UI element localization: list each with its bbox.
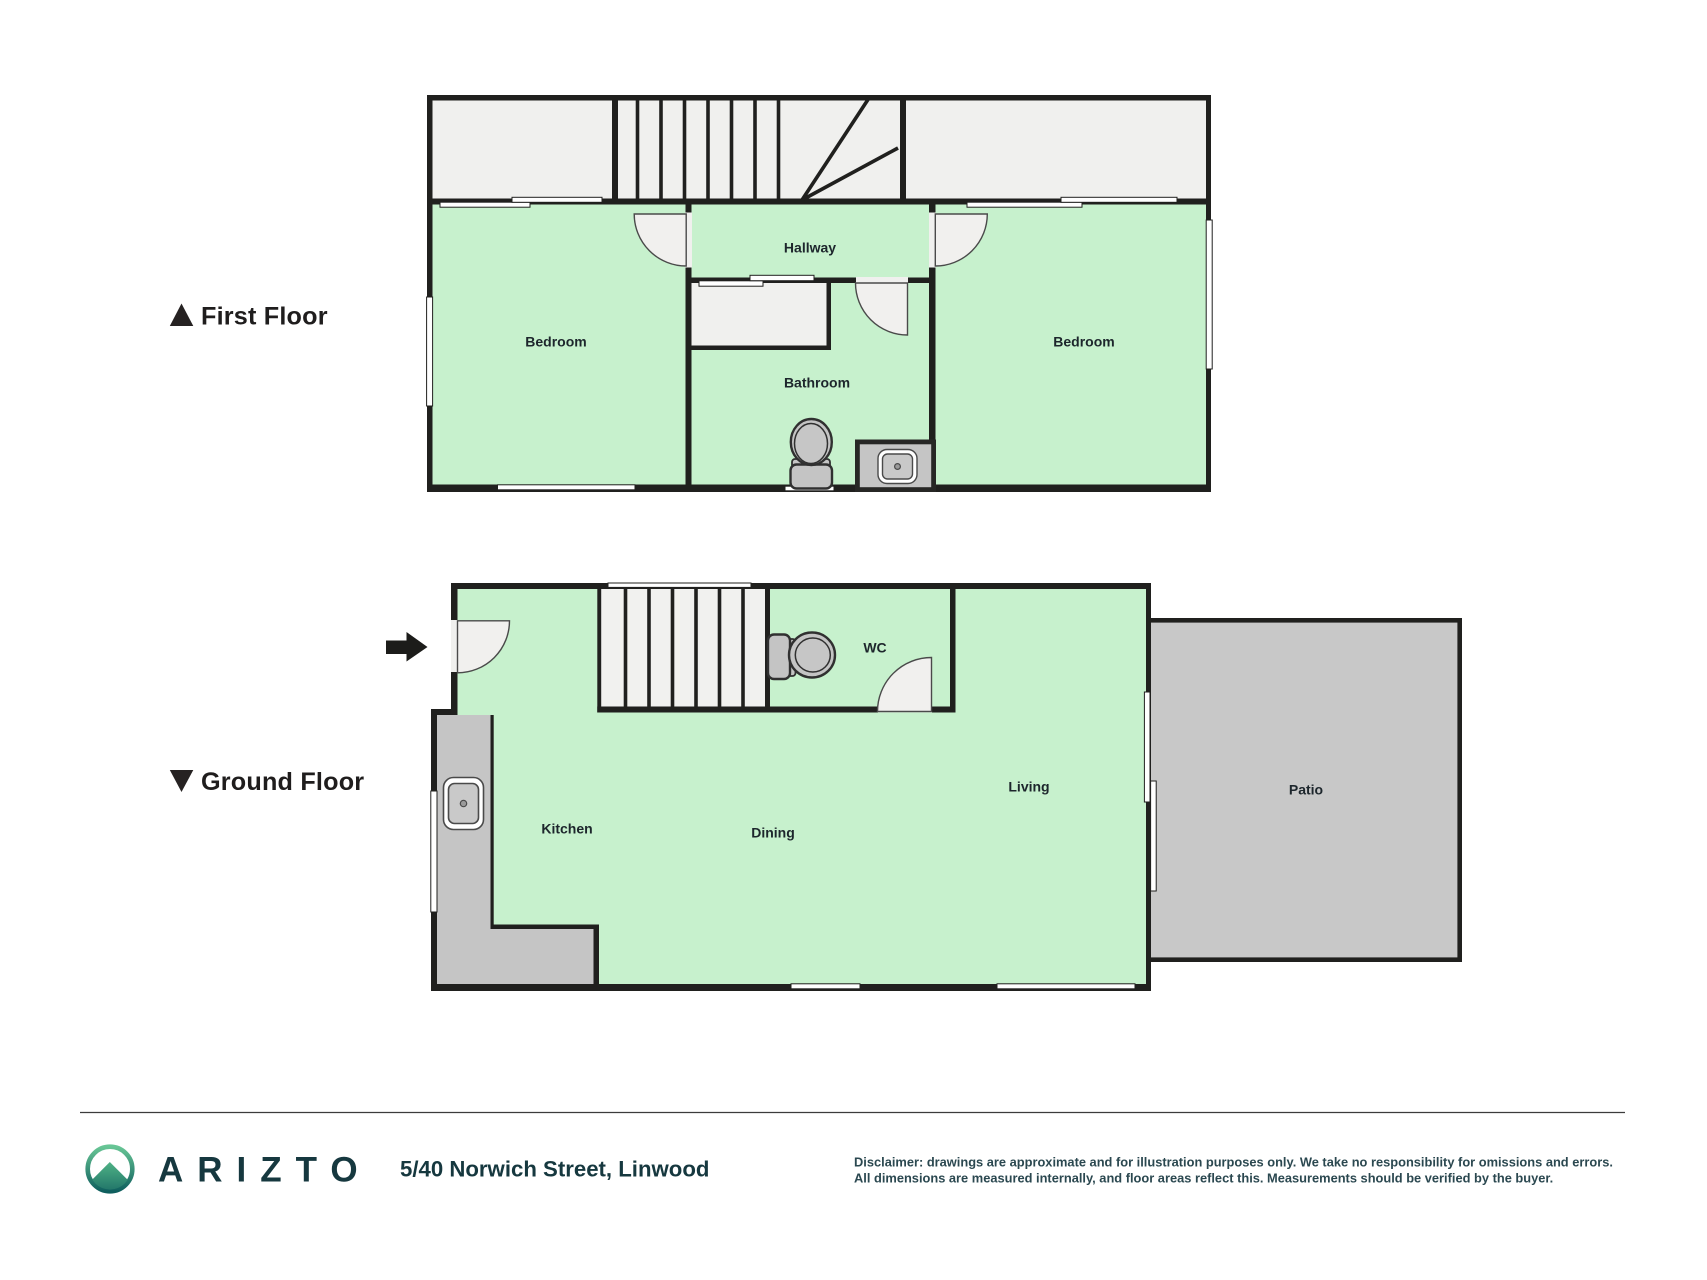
- svg-text:5/40 Norwich Street, Linwood: 5/40 Norwich Street, Linwood: [400, 1157, 709, 1182]
- svg-text:Bedroom: Bedroom: [1053, 334, 1114, 350]
- svg-text:Kitchen: Kitchen: [541, 821, 592, 837]
- svg-text:Hallway: Hallway: [784, 240, 836, 256]
- svg-text:All dimensions are measured in: All dimensions are measured internally, …: [854, 1171, 1553, 1186]
- svg-text:WC: WC: [863, 640, 886, 656]
- svg-text:ARIZTO: ARIZTO: [158, 1151, 372, 1190]
- svg-text:Bathroom: Bathroom: [784, 375, 850, 391]
- svg-text:Living: Living: [1008, 779, 1049, 795]
- svg-text:Bedroom: Bedroom: [525, 334, 586, 350]
- svg-text:Dining: Dining: [751, 825, 795, 841]
- svg-text:Patio: Patio: [1289, 782, 1323, 798]
- svg-text:First Floor: First Floor: [201, 303, 328, 331]
- svg-text:Ground Floor: Ground Floor: [201, 768, 364, 796]
- svg-text:Disclaimer: drawings are appro: Disclaimer: drawings are approximate and…: [854, 1155, 1613, 1170]
